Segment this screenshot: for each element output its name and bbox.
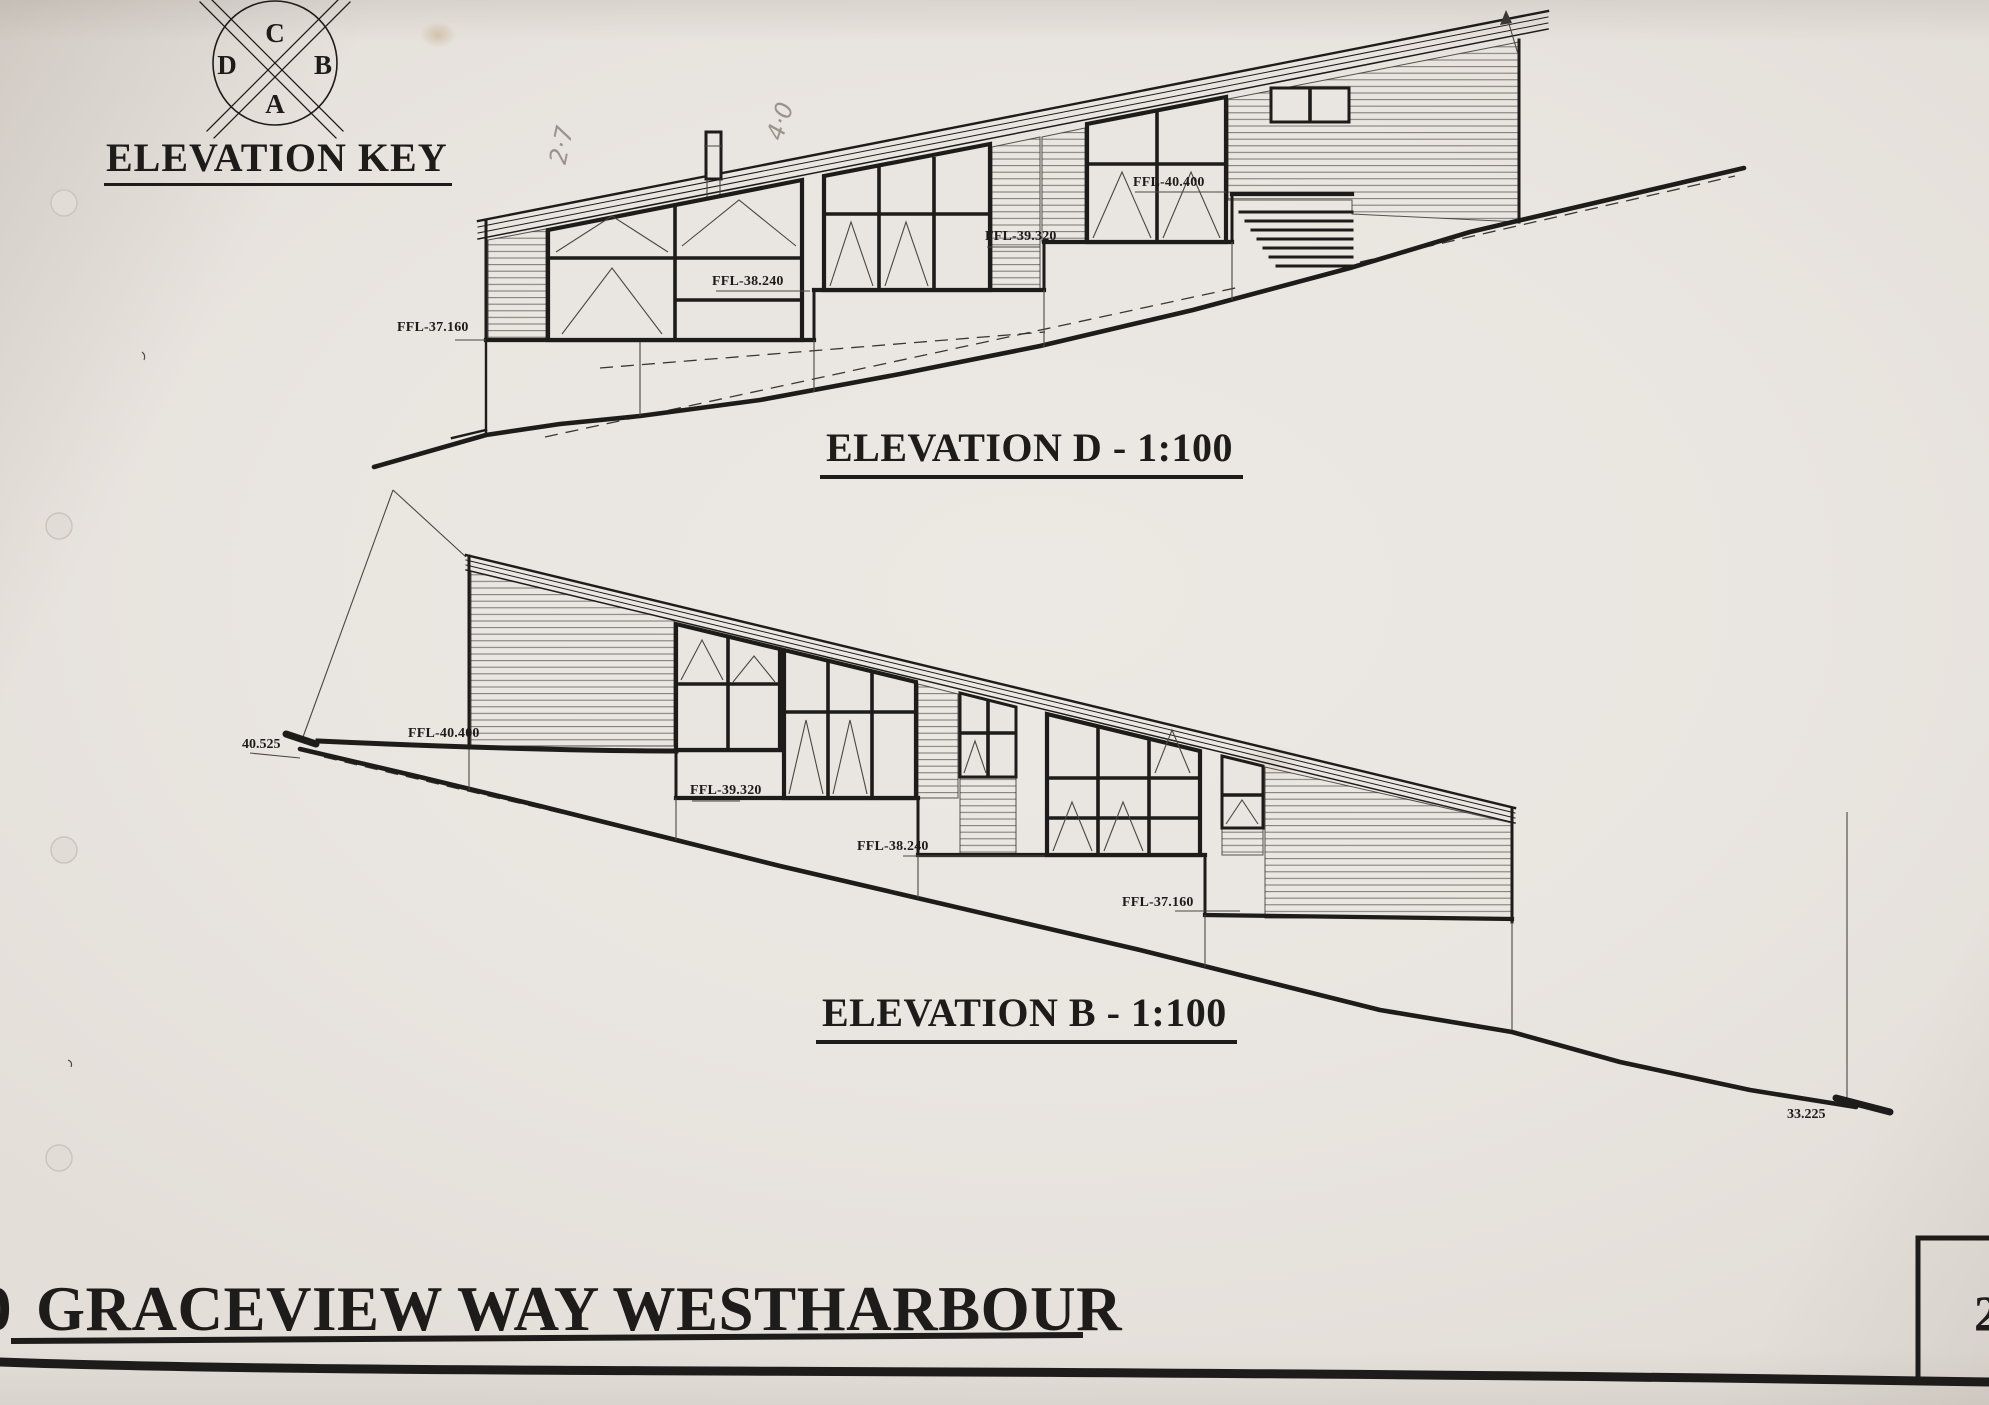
key-letter-d: D — [217, 50, 237, 80]
window-group — [1087, 97, 1226, 242]
window-group — [1222, 756, 1263, 828]
sheet-number: 2 — [1974, 1285, 1989, 1341]
window-group — [1047, 714, 1200, 855]
ffl-label: FFL-38.240 — [712, 274, 784, 289]
window-group — [960, 693, 1016, 777]
elevation-b-title: ELEVATION B - 1:100 — [816, 993, 1237, 1044]
window-group — [548, 180, 802, 340]
elevation-d-title: ELEVATION D - 1:100 — [820, 428, 1243, 479]
stairs — [1240, 212, 1352, 266]
elevation-key-title: ELEVATION KEY — [104, 138, 452, 186]
scanned-elevation-sheet: C D B A — [0, 0, 1989, 1405]
clerestory-window — [1271, 88, 1349, 122]
reference-lines — [303, 490, 466, 737]
datum-label: 40.525 — [242, 737, 281, 752]
paper-marks — [68, 352, 145, 1067]
key-letter-b: B — [314, 50, 332, 80]
punch-holes — [46, 190, 77, 1171]
elevation-d-drawing: FFL-40.400 FFL-39.320 FFL-38.240 FFL-37.… — [374, 10, 1744, 467]
window-group — [784, 650, 916, 798]
window-group — [676, 624, 780, 750]
pencil-note: 4·0 — [761, 99, 799, 144]
ffl-label: FFL-40.400 — [408, 726, 480, 741]
key-letter-a: A — [265, 89, 285, 119]
project-title: GRACEVIEW WAY WESTHARBOUR — [36, 1278, 1122, 1341]
ffl-label: FFL-39.320 — [690, 783, 762, 798]
ffl-label: FFL-38.240 — [857, 839, 929, 854]
sheet-number-box: 2 — [1918, 1238, 1989, 1380]
pencil-annotations: 2·7 4·0 — [544, 99, 800, 167]
ffl-label: FFL-37.160 — [1122, 895, 1194, 910]
key-letter-c: C — [265, 18, 285, 48]
ffl-label: FFL-40.400 — [1133, 175, 1205, 190]
ffl-label: FFL-37.160 — [397, 320, 469, 335]
pencil-note: 2·7 — [544, 123, 579, 167]
bottom-rule — [0, 1362, 1989, 1382]
elevation-key-symbol: C D B A — [200, 0, 350, 138]
elevation-drawing-canvas: C D B A — [0, 0, 1989, 1405]
datum-label: 33.225 — [1787, 1107, 1826, 1122]
ffl-label: FFL-39.320 — [985, 229, 1057, 244]
project-title-partial-prefix: 0 — [0, 1278, 12, 1341]
